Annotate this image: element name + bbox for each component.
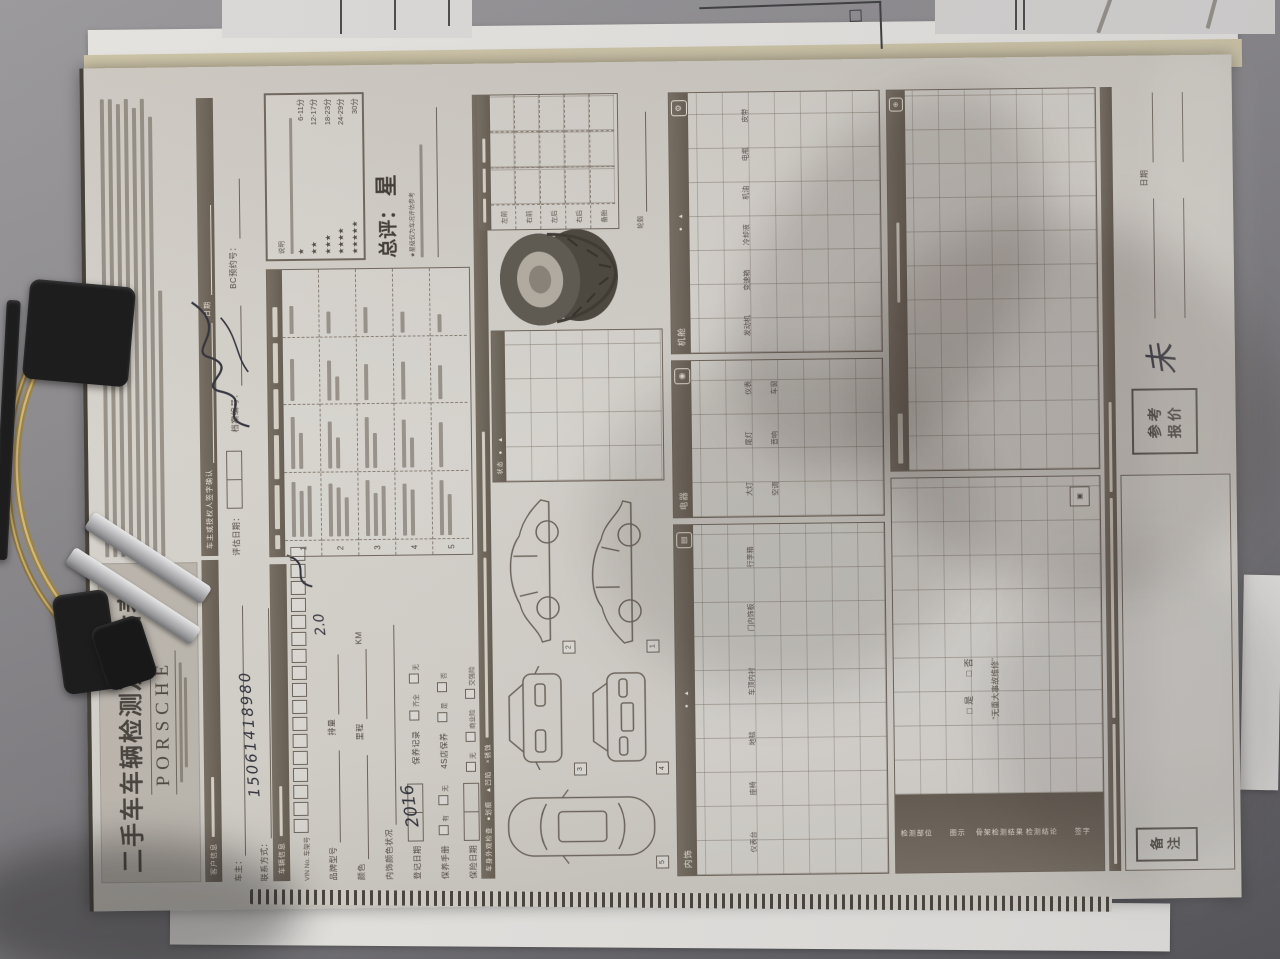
checkbox [437, 712, 447, 722]
rating-scale-row: ★★★★★30分 [348, 98, 361, 254]
printed-line [340, 0, 342, 34]
stars: ★★★★★ [350, 221, 361, 255]
item: 门内饰板 [746, 603, 756, 631]
contact-label: 联系方式： [260, 839, 270, 882]
blurred-header-label [273, 389, 278, 429]
status-label: 状态 [495, 460, 504, 474]
interior-label: 内饰颜色状况 [385, 829, 395, 880]
stars: ★★ [310, 241, 321, 255]
overall-line [436, 107, 439, 257]
checkbox [439, 825, 449, 835]
tire-cell [515, 132, 539, 169]
bottom-line [1172, 92, 1184, 162]
blurred-header-label [483, 199, 486, 223]
tire-cell [565, 94, 589, 131]
item: 尾灯 [744, 431, 754, 445]
tire-cell [541, 168, 565, 205]
owner-label: 车主： [234, 856, 243, 882]
notes-label-box: 备注 [1136, 827, 1198, 862]
vin-label: VIN No. 车架号 [304, 837, 312, 881]
item-labels: 仪表台 座椅 地毯 车顶内衬 门内饰板 行李箱 [745, 528, 759, 870]
blurred-text-line [289, 118, 294, 254]
range: 24-29分 [335, 98, 346, 125]
chassis-check-box: ⊕ [886, 87, 1101, 472]
range: 12-17分 [308, 99, 319, 126]
score-cell [394, 336, 431, 404]
diagram-number-5: 5 [656, 855, 669, 868]
score-cell [320, 337, 357, 405]
vin-cell [292, 666, 307, 680]
handwritten-signature [184, 282, 264, 439]
insurance-date-box [463, 782, 480, 840]
chassis-icon: ⊕ [889, 98, 903, 112]
car-side-view-left [497, 496, 563, 649]
maintenance-label: 保养记录 [412, 731, 421, 765]
item: 变速箱 [742, 270, 752, 291]
checkbox [437, 682, 447, 692]
dotted-grid: 仪表台 座椅 地毯 车顶内衬 门内饰板 行李箱 [693, 523, 888, 875]
tire-cell [540, 95, 564, 132]
vehicle-fields: 品牌型号 排量 2.0 颜色 里程 KM 内饰颜色状况 登记日期 2016 [315, 557, 477, 881]
item: 车窗 [769, 380, 779, 394]
vin-cell [292, 717, 307, 731]
frame-column-label: 骨架检测结果 [976, 827, 1024, 838]
blurred-text-line [279, 786, 283, 836]
checkbox [409, 710, 419, 720]
inspection-header: 电器 ◉ [672, 361, 693, 517]
dotted-grid: 大灯 尾灯 仪表 空调 音响 车窗 [691, 359, 884, 517]
notes-label: 备注 [1150, 835, 1184, 854]
row-number: 4 [396, 539, 432, 554]
opt-none: 无 [442, 785, 449, 792]
displacement-line [328, 654, 340, 714]
blurred-text-line [483, 557, 488, 737]
reg-date-label: 登记日期 [413, 845, 422, 879]
tire-row: 右前 [514, 95, 541, 229]
frame-column-label: 检测部位 [901, 828, 933, 838]
item: 行李箱 [745, 546, 755, 567]
blurred-header-label [275, 535, 280, 549]
tire-cell [590, 94, 614, 131]
frame-label-column: 检测部位 图示 骨架检测结果 检测结论 签字 [895, 792, 1104, 873]
printed-square [849, 10, 861, 22]
blurred-header-label [897, 414, 903, 464]
checkbox [438, 795, 448, 805]
checkbox [409, 674, 419, 684]
blurred-text-line [481, 431, 485, 551]
printed-line [1015, 0, 1017, 30]
score-cell [356, 269, 393, 337]
tire-position: 左前 [491, 205, 515, 229]
bottom-date-label: 日期 [1139, 169, 1150, 186]
insurance-date-label: 保险日期 [469, 845, 478, 879]
score-cell [432, 471, 469, 539]
color-label: 颜色 [357, 863, 366, 880]
frame-column-label: 图示 [950, 828, 966, 838]
diagram-number-1: 1 [646, 640, 659, 653]
paper-sliver-right [1240, 575, 1280, 791]
tire-position: 右后 [566, 204, 590, 228]
printed-line [1023, 0, 1025, 30]
rating-legend-box: 说明 ★6-11分 ★★12-17分 ★★★18-23分 ★★★★24-29分 … [264, 92, 366, 261]
score-cell [431, 336, 468, 404]
tire-cell [566, 168, 590, 205]
printed-line [394, 0, 396, 30]
displacement-label: 排量 [327, 719, 336, 736]
vin-cell [294, 819, 309, 833]
rating-scale-row: ★6-11分 [294, 99, 307, 255]
mileage-line [356, 649, 368, 719]
score-cell [432, 403, 469, 471]
vin-cell [293, 802, 308, 816]
vehicle-section-label: 车辆信息 [276, 842, 286, 874]
rating-box-title: 说明 [279, 241, 286, 254]
score-cell [321, 405, 358, 473]
vin-cell [293, 734, 308, 748]
item: 座椅 [748, 781, 758, 795]
tire-cell [490, 95, 514, 132]
inspection-box-interior: 内饰 ● ▲ ▤ 仪表台 座椅 地毯 车顶内衬 门内饰板 行李箱 [673, 522, 889, 877]
status-legend: ● ▲ [675, 212, 684, 231]
opt-shi: 是 [441, 703, 448, 710]
item: 音响 [770, 431, 780, 445]
score-cell [393, 268, 430, 336]
item-labels: 发动机 变速箱 冷却液 机油 电瓶 皮带 [740, 96, 753, 348]
blurred-text-line [1112, 724, 1117, 864]
vin-cell [291, 649, 306, 663]
item: 发动机 [742, 315, 752, 336]
notes-box: 备注 [1120, 474, 1235, 871]
stars: ★★★ [323, 234, 334, 254]
item: 空调 [770, 482, 780, 496]
customer-section-label: 客户信息 [208, 843, 218, 875]
vin-cell [292, 683, 307, 697]
tire-cell [591, 167, 615, 204]
diagram-number-2: 2 [562, 641, 575, 654]
tire-cell [540, 131, 564, 168]
vin-cell [291, 598, 306, 612]
inspection-box-engine: 机舱 ● ▲ ⚙ 发动机 变速箱 冷却液 机油 电瓶 皮带 [668, 90, 883, 355]
ref-no-line [229, 178, 241, 238]
item: 地毯 [748, 731, 758, 745]
overall-rating: 总评： 星 ★星级仅为车况评估参考 [368, 95, 439, 258]
score-table: 1 2 3 4 [266, 267, 474, 557]
desk-paper-topright [935, 0, 1275, 34]
car-front-view [505, 666, 568, 771]
item: 大灯 [744, 482, 754, 496]
blurred-header-label [274, 435, 280, 479]
stars: ★★★★ [336, 227, 347, 254]
diagram-number-3: 3 [574, 762, 587, 775]
frame-quote-line: “无重大事故维修” [990, 658, 1002, 719]
opt-fou: 否 [441, 673, 448, 680]
score-cell [283, 337, 320, 405]
quote-box-line2: 报价 [1165, 404, 1185, 438]
score-cell [284, 473, 321, 541]
checkbox [466, 762, 476, 772]
frame-checkbox-line: □ 是 □ 否 [962, 658, 976, 714]
eval-date-label: 评估日期： [232, 513, 242, 556]
blurred-text-line [1109, 498, 1115, 718]
frame-column-label: 签字 [1075, 826, 1091, 836]
score-cell [395, 404, 432, 472]
rating-footnote: ★星级仅为车况评估参考 [406, 95, 417, 257]
range: 18-23分 [321, 98, 332, 125]
blurred-header-label [274, 485, 280, 529]
diagram-number-4: 4 [656, 761, 669, 774]
reference-quote-box: 参考 报价 [1131, 388, 1198, 455]
inspection-form-sheet: 二手车车辆检测及评估表 PORSCHE 客户信息 车主或授权人签字确认 [79, 54, 1241, 911]
checkbox [466, 732, 476, 742]
stamp-box-icon: ▣ [1070, 486, 1090, 506]
clipboard-photo: 二手车车辆检测及评估表 PORSCHE 客户信息 车主或授权人签字确认 [0, 0, 1280, 959]
frame-check-box: 检测部位 图示 骨架检测结果 检测结论 签字 □ 是 □ 否 “无重大事故维修”… [890, 475, 1105, 874]
blurred-text-line [184, 677, 188, 767]
tire-position: 左后 [541, 205, 565, 229]
blurred-text-line [1096, 0, 1113, 33]
bottom-line [1143, 198, 1155, 318]
blurred-header-label [273, 343, 278, 383]
score-cell [282, 270, 319, 338]
bottom-line [1142, 92, 1154, 162]
date-line [201, 205, 212, 295]
customer-section-header: 客户信息 [201, 560, 222, 882]
ins-compulsory: 交强险 [469, 666, 476, 686]
dotted-grid: 发动机 变速箱 冷却液 机油 电瓶 皮带 [688, 91, 882, 353]
vin-cell [291, 615, 306, 629]
bottom-line [1173, 198, 1185, 318]
dotted-grid [505, 329, 663, 481]
score-cell [430, 268, 467, 336]
score-cell [358, 404, 395, 472]
item: 仪表台 [749, 831, 759, 852]
score-cell [321, 472, 358, 540]
gear-icon: ⚙ [670, 100, 686, 116]
score-row: 2 [318, 269, 358, 555]
blurred-text-line [1108, 402, 1112, 492]
opt-yes: 有 [443, 815, 450, 822]
vehicle-section-header: 车辆信息 [269, 564, 290, 881]
tire-position: 右前 [516, 205, 540, 229]
blurred-text-line [419, 144, 423, 257]
stars: ★ [296, 248, 307, 255]
score-cell [284, 405, 321, 473]
checkbox [465, 689, 475, 699]
blurred-text-line [179, 662, 183, 782]
brand-model-line [329, 750, 341, 842]
vin-cell [293, 751, 308, 765]
eval-date-box [226, 451, 243, 509]
tire-cell [515, 95, 539, 132]
score-row: 4 [392, 268, 432, 554]
overall-label: 总评： [378, 201, 400, 258]
mileage-label: 里程 [355, 723, 364, 740]
rating-scale-row: ★★★★24-29分 [335, 98, 348, 254]
vin-cell [293, 785, 308, 799]
score-cell [358, 472, 395, 540]
blurred-header-label [483, 169, 486, 193]
customer-fields: 车主： 联系方式： 15061418980 [222, 559, 270, 882]
exterior-legend-title: 车身外观检查 [483, 827, 494, 872]
wheel-label: 轮毂 [637, 216, 644, 229]
inspection-box-electric: 电器 ◉ 大灯 尾灯 仪表 空调 音响 车窗 [671, 358, 885, 519]
interior-line [383, 624, 396, 824]
desk-paper-corner [699, 1, 883, 55]
item: 车顶内衬 [747, 667, 757, 695]
mileage-unit: KM [354, 631, 363, 644]
item: 机油 [741, 186, 751, 200]
score-row: 3 [355, 269, 395, 555]
range: 6-11分 [294, 99, 305, 121]
car-side-view-right [579, 495, 647, 648]
printed-line [448, 0, 450, 26]
wheel-underline [635, 111, 647, 211]
dealer-label: 4S店保养 [440, 732, 449, 768]
tire-cell [490, 132, 514, 169]
tire-row: 右后 [564, 94, 591, 228]
wheel-line: 轮毂 [628, 111, 647, 229]
blurred-header-label [482, 139, 485, 163]
section-title: 机舱 [675, 327, 687, 346]
score-row: 5 [429, 268, 469, 554]
handbook-label: 保养手册 [441, 845, 450, 879]
range: 30分 [348, 98, 359, 114]
vin-cell [293, 768, 308, 782]
item-labels: 空调 音响 车窗 [769, 362, 781, 514]
tire-row: 左后 [539, 95, 566, 229]
handwritten-mark: 未 [1135, 341, 1185, 380]
paint-status-grid: 状态 ● ▲ [491, 328, 665, 482]
ins-commercial: 商业险 [469, 709, 476, 729]
rating-scale-row: ★★12-17分 [308, 99, 321, 255]
quote-area: 参考 报价 未 日期 [1116, 86, 1231, 469]
clip-upper-block [22, 279, 136, 388]
car-rear-view [587, 665, 652, 770]
section-title: 电器 [677, 491, 689, 510]
tire-row: 备胎 [589, 94, 616, 228]
opt-none: 无 [413, 664, 420, 671]
tire-cell [590, 131, 614, 168]
vin-cell [291, 632, 306, 646]
handwritten-displacement: 2.0 [311, 613, 329, 637]
frame-column-label: 检测结论 [1025, 827, 1057, 837]
score-row: 1 [282, 270, 321, 556]
tire-table: 左前 右前 左后 右后 备胎 [476, 93, 620, 231]
desk-paper-topleft [222, 0, 472, 38]
tire-cell [516, 168, 540, 205]
overall-value: 星 [374, 174, 399, 196]
quote-box-line1: 参考 [1145, 404, 1165, 438]
seat-icon: ▤ [676, 532, 692, 548]
item: 仪表 [743, 381, 753, 395]
dotted-grid: □ 是 □ 否 “无重大事故维修” ▣ [891, 476, 1103, 795]
tire-illustration [477, 220, 634, 336]
rating-scale-row: ★★★18-23分 [321, 98, 334, 254]
sign-confirm-label: 车主或授权人签字确认 [204, 469, 215, 549]
car-top-view [502, 787, 661, 867]
status-legend: ● ▲ [681, 689, 690, 708]
eval-header-fields: 评估日期： 档案编号： BC预约号： [217, 97, 267, 556]
section-title: 内饰 [681, 849, 693, 868]
blurred-header-label [272, 307, 277, 337]
score-cell [319, 269, 356, 337]
status-symbols: ● ▲ [495, 436, 504, 455]
lamp-icon: ◉ [674, 368, 690, 384]
row-number: 5 [433, 539, 469, 554]
score-cell [395, 472, 432, 540]
item: 冷却液 [741, 224, 751, 245]
vin-row: VIN No. 车架号 [290, 559, 314, 881]
dotted-grid [905, 88, 1100, 470]
row-number: 2 [322, 540, 358, 555]
opt-complete: 齐全 [413, 694, 420, 707]
tire-cell [565, 131, 589, 168]
item: 皮带 [740, 109, 750, 123]
ins-none: 无 [470, 752, 477, 759]
car-diagram-panel: 5 3 4 2 [493, 484, 674, 878]
brand-model-label: 品牌型号 [329, 846, 338, 880]
blurred-text-line [1206, 0, 1219, 29]
item-labels: 大灯 尾灯 仪表 [743, 362, 755, 514]
row-number: 3 [359, 540, 395, 555]
color-line [357, 755, 369, 859]
score-cell [357, 337, 394, 405]
vin-cell [292, 700, 307, 714]
blurred-text-line [211, 777, 215, 837]
tire-row: 左前 [490, 95, 516, 229]
tire-position: 备胎 [591, 204, 615, 228]
tire-cell [491, 169, 515, 206]
row-number: 1 [285, 541, 321, 556]
item: 电瓶 [740, 147, 750, 161]
blurred-header-label [896, 223, 900, 303]
exterior-legend-symbols: ●划痕 ▲凹陷 ×锈蚀 [482, 743, 493, 820]
